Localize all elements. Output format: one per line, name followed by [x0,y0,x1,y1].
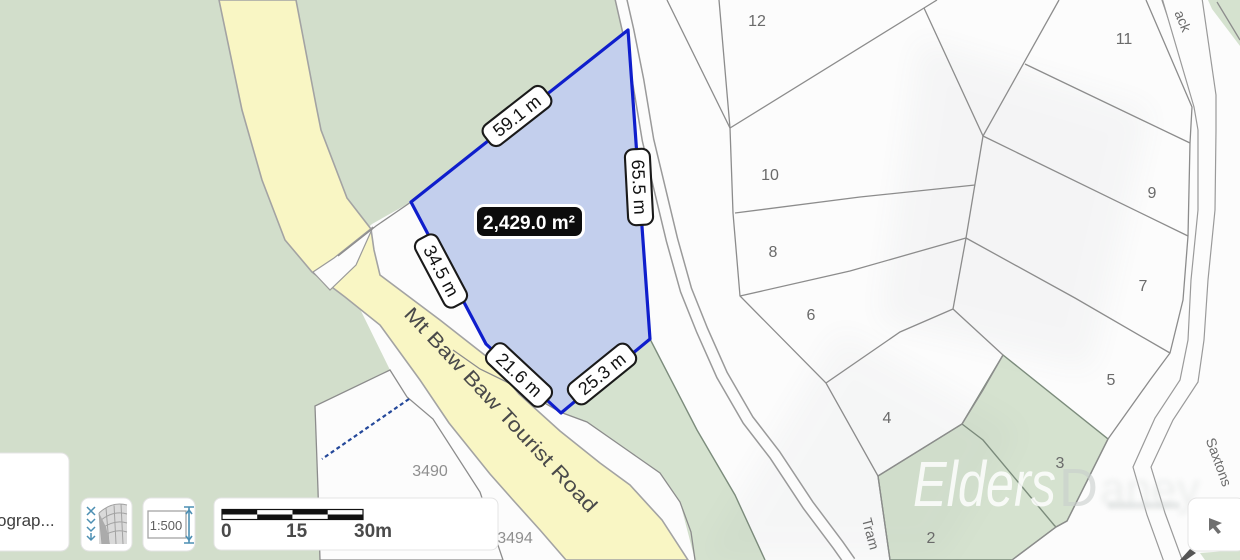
svg-text:0: 0 [221,521,232,542]
svg-text:D: D [1059,458,1098,518]
svg-text:9: 9 [1148,185,1157,202]
svg-text:15: 15 [286,521,308,542]
svg-text:6: 6 [807,307,816,324]
svg-text:ograp...: ograp... [0,511,55,530]
svg-text:65.5 m: 65.5 m [628,159,651,215]
svg-text:2: 2 [927,530,936,547]
svg-text:Elders: Elders [913,448,1056,520]
svg-text:10: 10 [761,167,779,184]
svg-text:3494: 3494 [497,530,533,547]
svg-text:30m: 30m [354,521,392,542]
svg-text:1:500: 1:500 [150,518,183,533]
svg-text:12: 12 [748,13,766,30]
svg-text:8: 8 [769,244,778,261]
svg-text:11: 11 [1116,31,1133,48]
svg-text:4: 4 [883,410,892,427]
svg-text:3490: 3490 [412,463,448,480]
svg-text:5: 5 [1107,372,1116,389]
svg-text:7: 7 [1139,278,1148,295]
svg-text:2,429.0 m²: 2,429.0 m² [483,213,575,234]
